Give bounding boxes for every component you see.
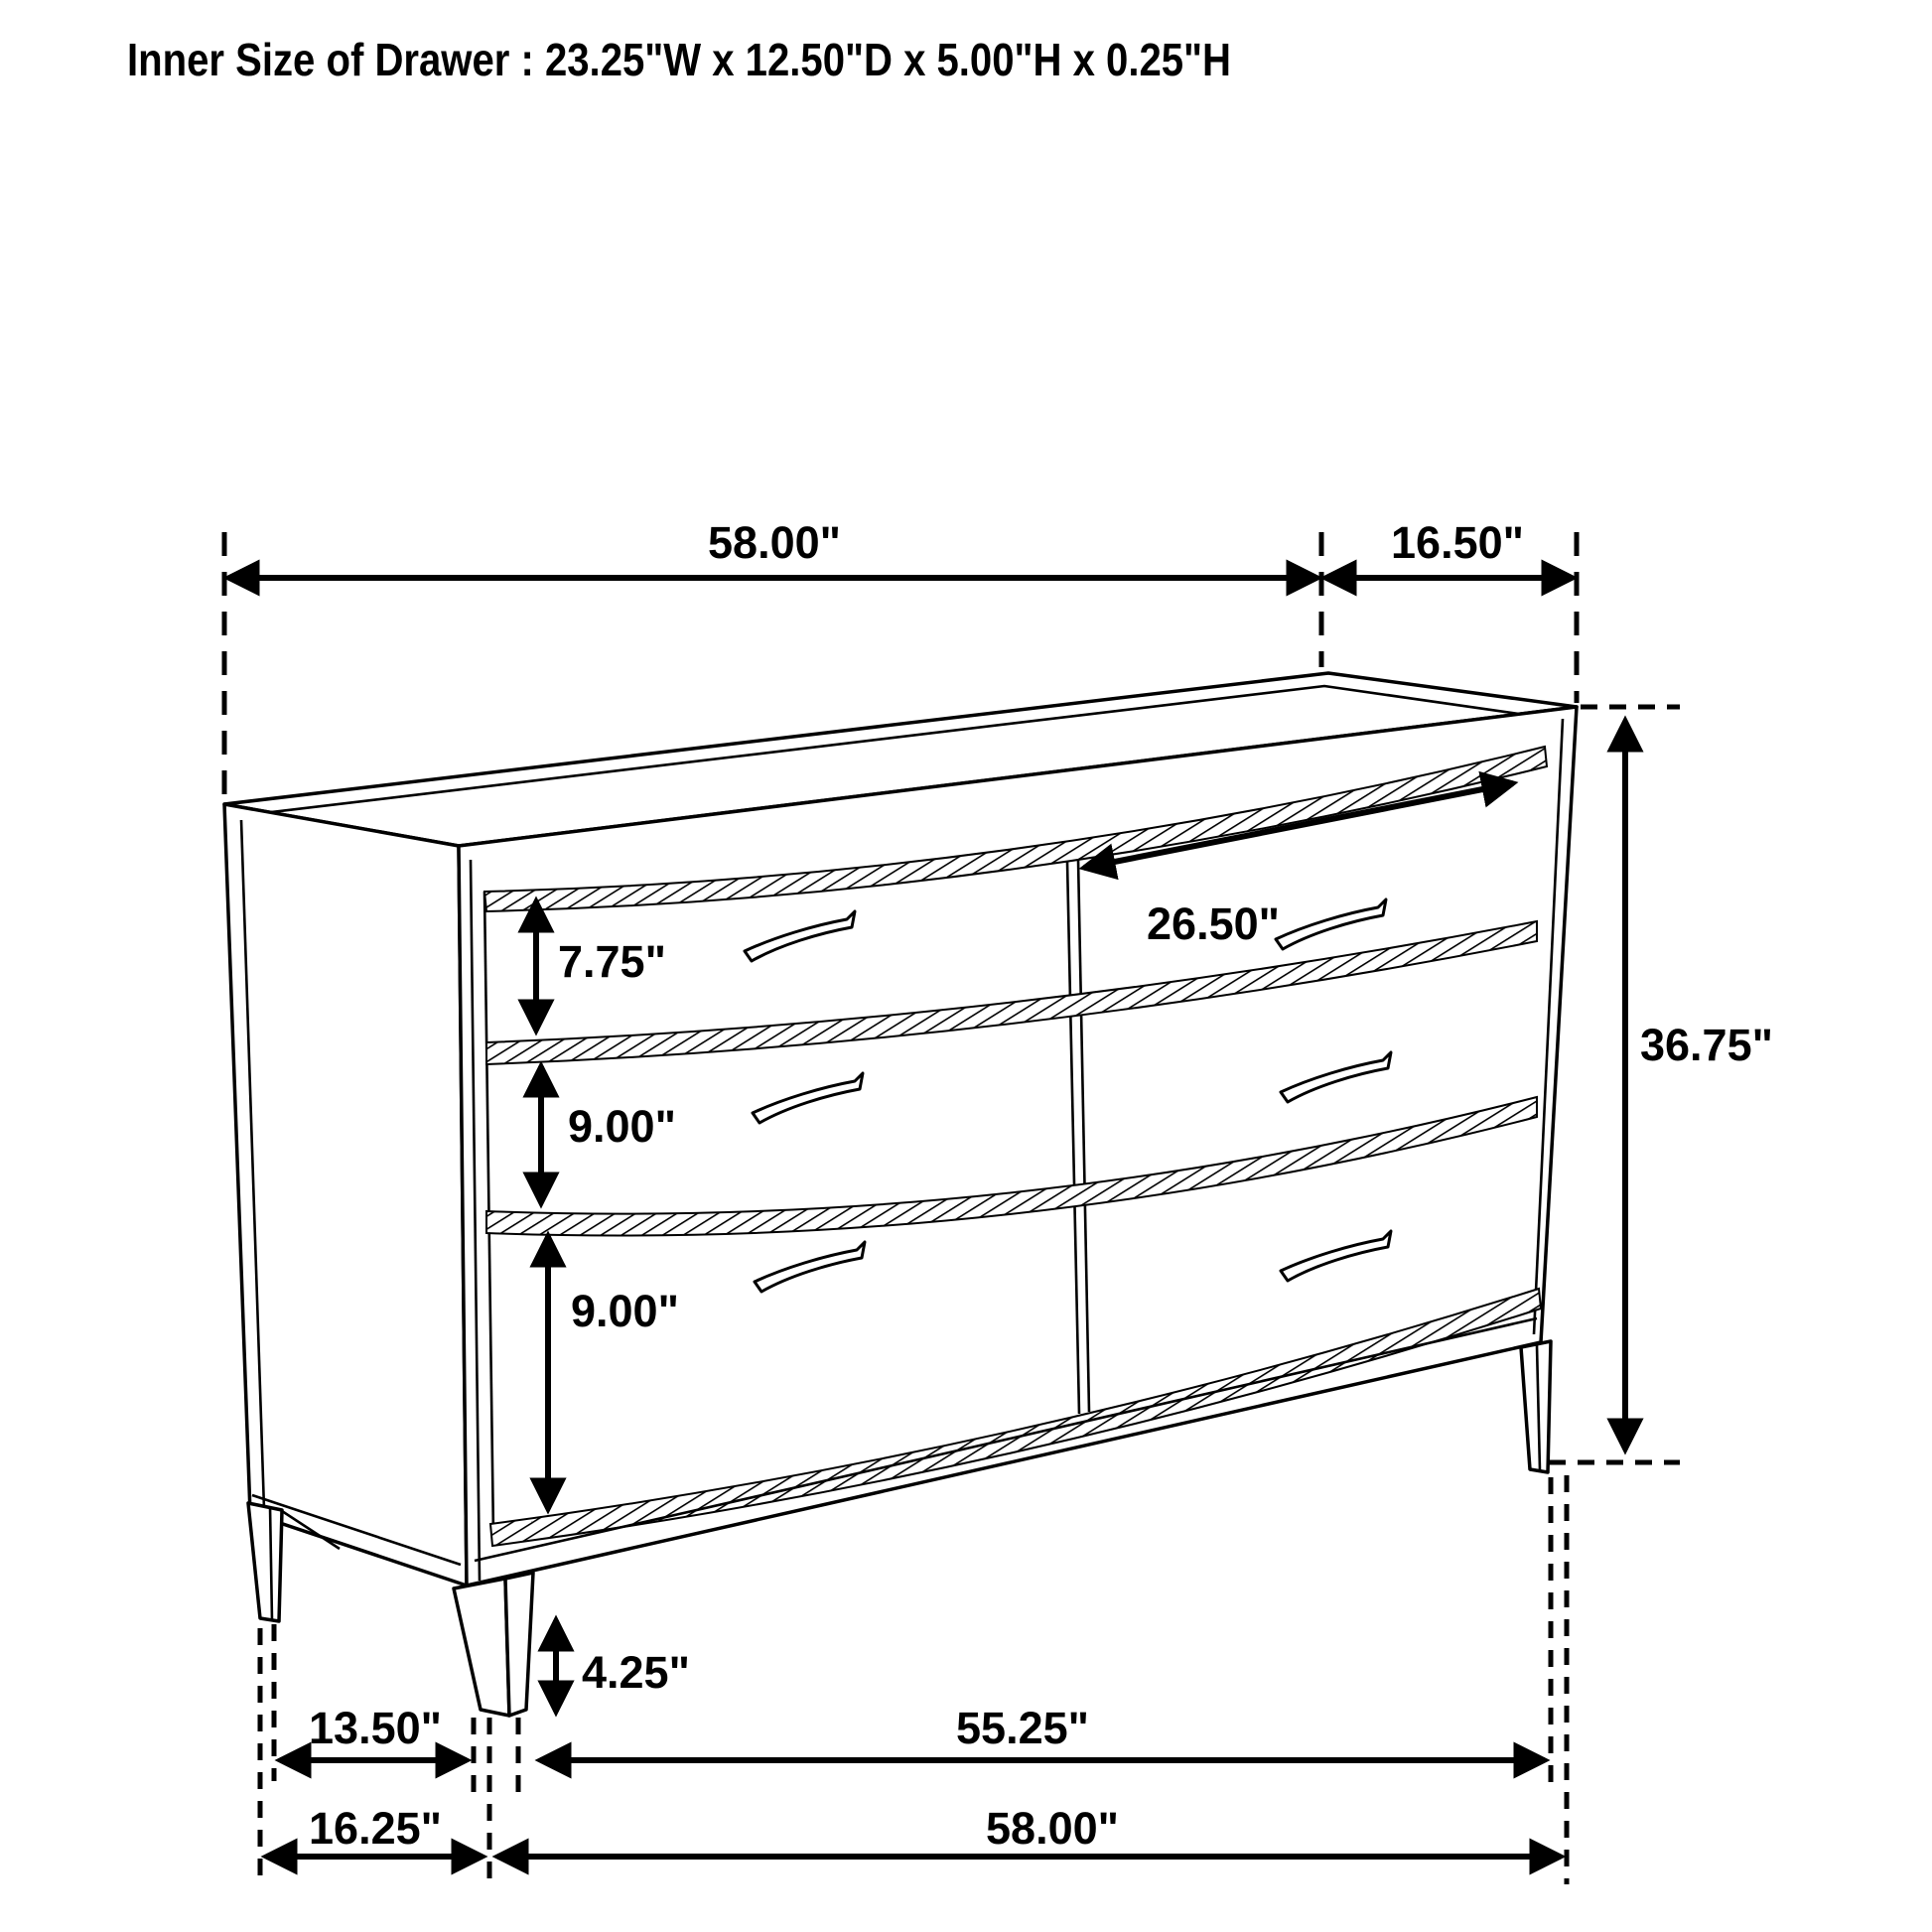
dim-label-top-depth: 16.50" bbox=[1391, 517, 1524, 568]
dim-label-leg-height: 4.25" bbox=[582, 1647, 690, 1698]
dresser-dimension-diagram: Inner Size of Drawer : 23.25"W x 12.50"D… bbox=[0, 0, 1932, 1932]
dim-label-drawer-width: 26.50" bbox=[1147, 898, 1280, 949]
front-left-leg bbox=[454, 1579, 509, 1716]
dim-label-middle-drawer-height: 9.00" bbox=[568, 1101, 676, 1152]
dresser-side-panel bbox=[224, 804, 467, 1586]
dim-label-leg-span: 55.25" bbox=[956, 1703, 1089, 1753]
dim-label-overall-width: 58.00" bbox=[986, 1803, 1119, 1854]
dim-label-overall-depth: 16.25" bbox=[309, 1803, 442, 1854]
back-left-leg bbox=[248, 1503, 282, 1621]
front-right-leg bbox=[1521, 1341, 1551, 1472]
dim-label-top-drawer-height: 7.75" bbox=[558, 936, 666, 987]
dim-label-top-width: 58.00" bbox=[708, 517, 841, 568]
diagram-title: Inner Size of Drawer : 23.25"W x 12.50"D… bbox=[127, 34, 1231, 85]
dimension-diagram-page: Inner Size of Drawer : 23.25"W x 12.50"D… bbox=[0, 0, 1932, 1932]
dresser-drawing bbox=[224, 673, 1577, 1716]
front-left-leg-side bbox=[505, 1573, 533, 1716]
dim-label-leg-inset: 13.50" bbox=[309, 1703, 442, 1753]
dim-label-bottom-drawer-height: 9.00" bbox=[571, 1286, 679, 1336]
dim-label-overall-height: 36.75" bbox=[1640, 1020, 1773, 1070]
